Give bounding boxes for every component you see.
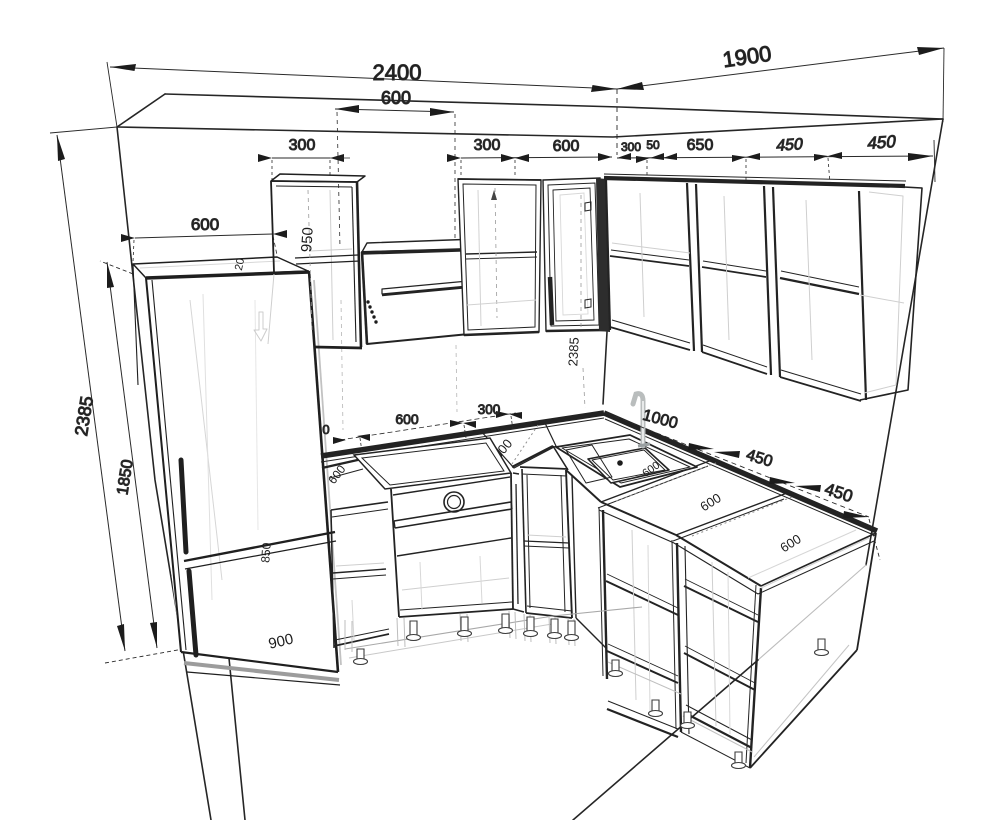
svg-text:300: 300	[474, 137, 501, 154]
svg-text:2385: 2385	[565, 337, 581, 367]
svg-text:300: 300	[478, 402, 501, 417]
svg-text:20: 20	[233, 257, 247, 271]
svg-text:850: 850	[258, 542, 273, 563]
svg-text:600: 600	[381, 88, 411, 108]
svg-text:600: 600	[395, 411, 419, 427]
svg-text:50: 50	[646, 138, 660, 152]
svg-text:450: 450	[866, 131, 897, 153]
svg-text:300: 300	[289, 137, 316, 154]
svg-text:2400: 2400	[373, 60, 422, 85]
svg-text:650: 650	[687, 137, 714, 154]
svg-text:600: 600	[553, 138, 580, 155]
svg-text:300: 300	[621, 140, 641, 154]
svg-text:450: 450	[775, 135, 804, 155]
svg-text:600: 600	[191, 215, 219, 234]
svg-text:950: 950	[298, 227, 317, 253]
svg-text:0: 0	[322, 422, 329, 437]
